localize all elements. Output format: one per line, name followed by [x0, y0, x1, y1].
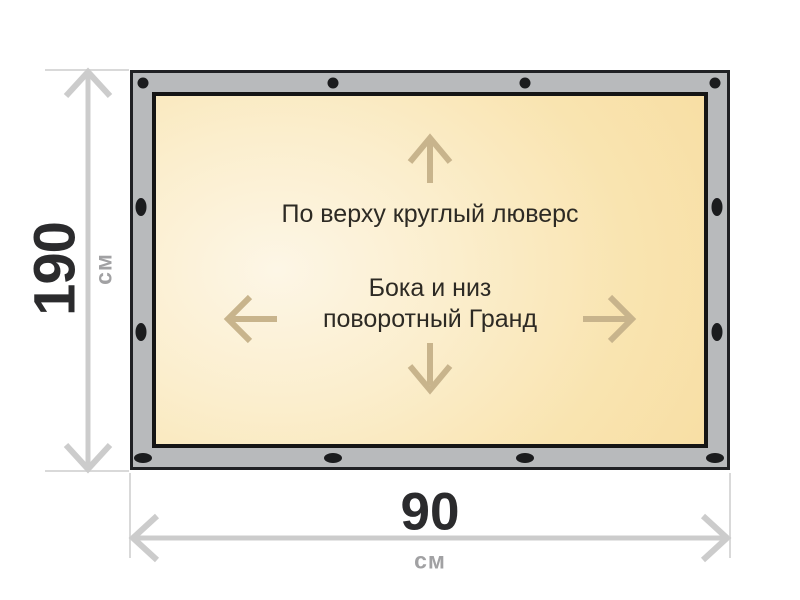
annotation-center-line2: поворотный Гранд [156, 304, 704, 335]
grommet-oval-icon [712, 198, 723, 216]
grommet-round-icon [710, 78, 721, 89]
width-unit-label: см [414, 548, 446, 575]
grommet-oval-icon [706, 453, 724, 463]
annotation-top: По верху круглый люверс [156, 199, 704, 229]
grommet-oval-icon [136, 323, 147, 341]
grommet-oval-icon [134, 453, 152, 463]
grommet-oval-icon [712, 323, 723, 341]
grommet-oval-icon [516, 453, 534, 463]
annotation-center-line1: Бока и низ [156, 273, 704, 304]
grommet-round-icon [328, 78, 339, 89]
grommet-oval-icon [324, 453, 342, 463]
grommet-round-icon [520, 78, 531, 89]
direction-arrows [156, 96, 704, 444]
annotation-center: Бока и низ поворотный Гранд [156, 273, 704, 335]
grommet-round-icon [138, 78, 149, 89]
arrow-up-icon [410, 138, 450, 183]
width-value-label: 90 [401, 482, 460, 543]
arrow-down-icon [410, 343, 450, 390]
height-value-label: 190 [22, 222, 89, 316]
grommet-oval-icon [136, 198, 147, 216]
height-unit-label: см [91, 253, 118, 285]
banner-dimension-diagram: 190 см [0, 0, 800, 600]
banner-panel: По верху круглый люверс Бока и низ повор… [152, 92, 708, 448]
banner-frame: По верху круглый люверс Бока и низ повор… [130, 70, 730, 470]
